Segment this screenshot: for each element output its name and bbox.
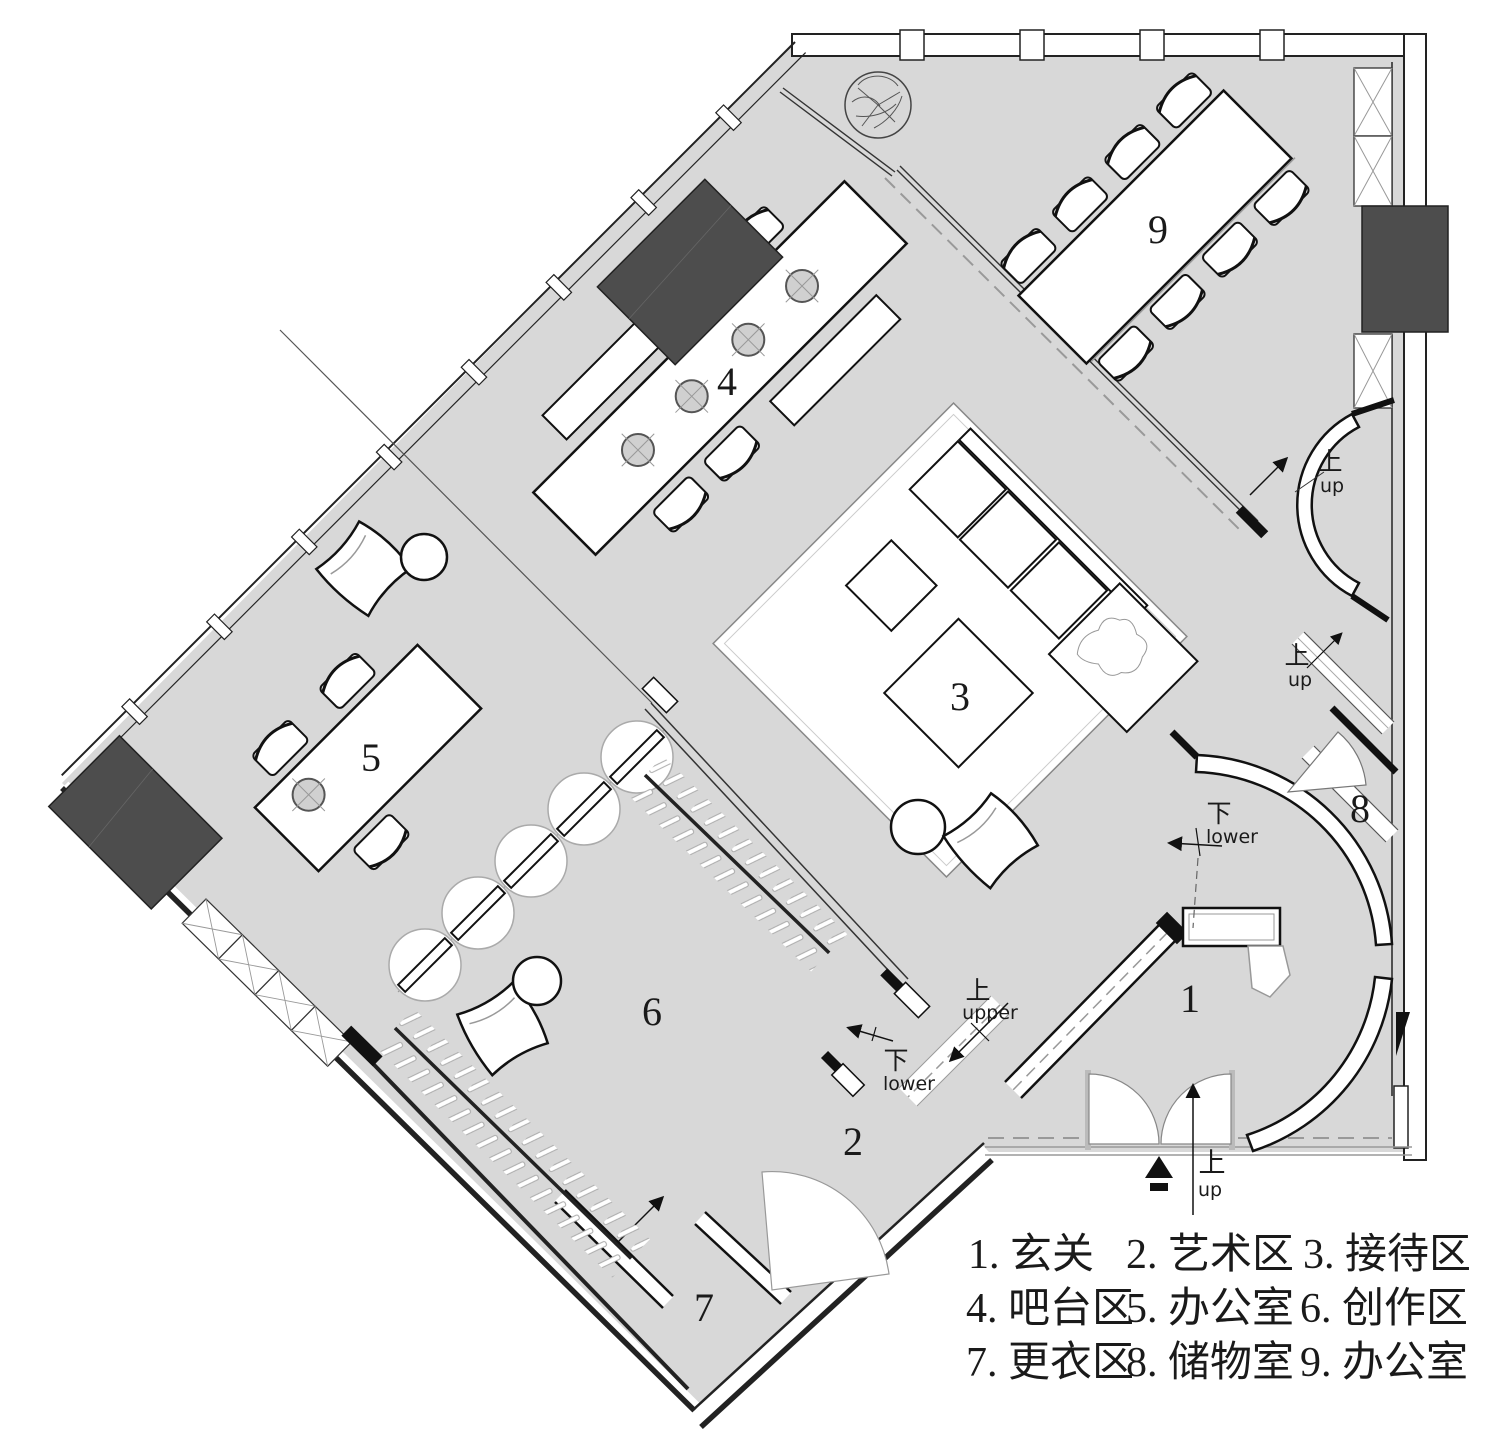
legend-item-8: 8. 储物室 (1126, 1339, 1294, 1386)
lower-en-label: lower (883, 1073, 935, 1095)
stool-6 (513, 957, 561, 1005)
room-label-8: 8 (1350, 786, 1370, 831)
legend: 1. 玄关 2. 艺术区 3. 接待区 4. 吧台区 5. 办公室 6. 创作区… (966, 1232, 1471, 1386)
legend-item-9: 9. 办公室 (1300, 1339, 1468, 1386)
right-wall (1404, 34, 1426, 1160)
up-cn-label: 上 (1317, 447, 1342, 476)
side-table-5 (401, 534, 447, 580)
legend-item-1: 1. 玄关 (968, 1232, 1094, 1278)
room-label-6: 6 (642, 989, 662, 1034)
up-en-label: up (1198, 1179, 1222, 1201)
legend-item-5: 5. 办公室 (1126, 1285, 1294, 1332)
room-label-5: 5 (361, 735, 381, 780)
legend-item-4: 4. 吧台区 (966, 1286, 1134, 1332)
room-label-7: 7 (694, 1285, 714, 1330)
down-cn-label: 下 (883, 1046, 908, 1075)
up-en-label: up (1288, 669, 1312, 691)
top-wall (792, 34, 1412, 56)
room-label-3: 3 (950, 674, 970, 719)
legend-item-2: 2. 艺术区 (1126, 1232, 1294, 1278)
up-cn-label: 上 (965, 976, 990, 1005)
legend-item-6: 6. 创作区 (1300, 1286, 1468, 1332)
upper-en-label: upper (962, 1002, 1018, 1024)
up-cn-label: 上 (1284, 641, 1309, 670)
down-cn-label: 下 (1206, 799, 1231, 828)
room-label-1: 1 (1180, 976, 1200, 1021)
room-label-9: 9 (1148, 207, 1168, 252)
floor-plan-drawing: 上 up 上 up 下 lower 上 upper 下 lower 上 up 1… (0, 0, 1500, 1439)
right-wall-return (1394, 1086, 1408, 1148)
lower-en-label: lower (1206, 826, 1258, 848)
up-en-label: up (1320, 475, 1344, 497)
room-label-2: 2 (843, 1119, 863, 1164)
column-right (1362, 206, 1448, 332)
legend-item-7: 7. 更衣区 (966, 1340, 1134, 1386)
entrance-marker-icon (1145, 1156, 1173, 1191)
up-cn-label: 上 (1199, 1148, 1226, 1179)
room-label-4: 4 (717, 359, 737, 404)
legend-item-3: 3. 接待区 (1303, 1232, 1471, 1278)
floor-plan-page: 上 up 上 up 下 lower 上 upper 下 lower 上 up 1… (0, 0, 1500, 1439)
side-table-3 (891, 800, 945, 854)
